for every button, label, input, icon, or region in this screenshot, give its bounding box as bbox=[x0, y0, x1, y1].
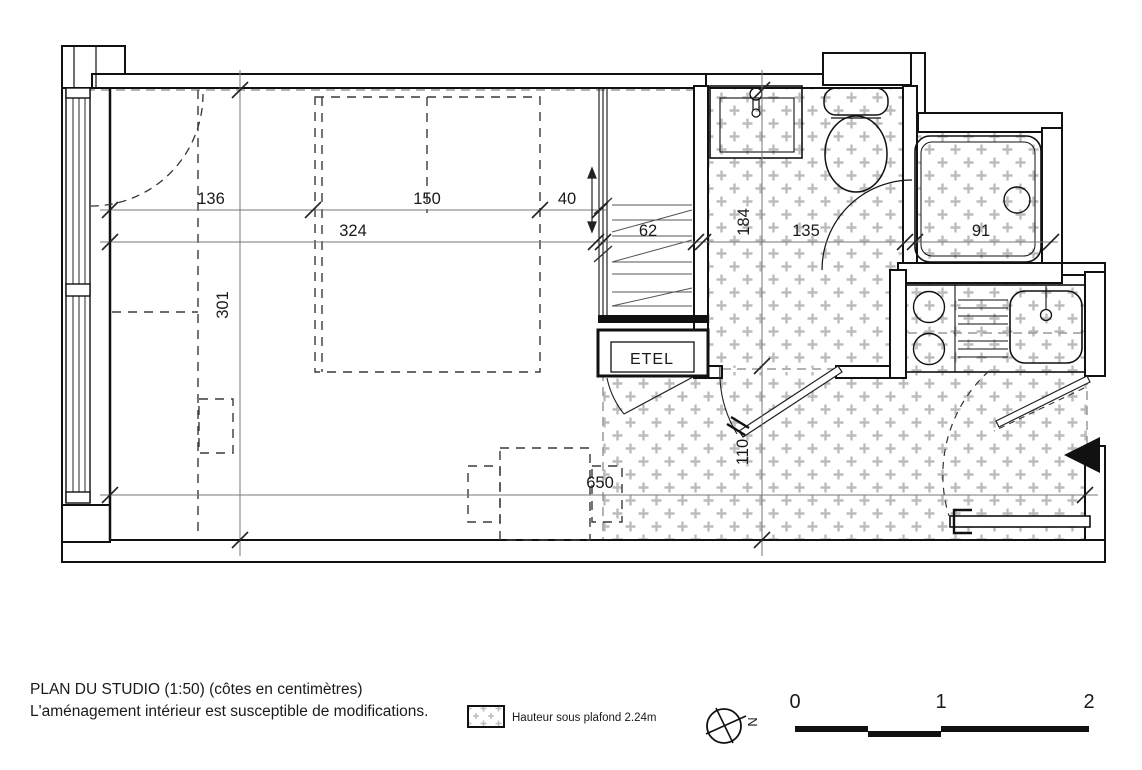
dim-150: 150 bbox=[413, 190, 441, 208]
arrow-40 bbox=[588, 168, 596, 232]
floor-plan-drawing: ETEL bbox=[0, 0, 1142, 770]
dim-136: 136 bbox=[197, 190, 225, 208]
table bbox=[500, 448, 590, 540]
window-swing-arc bbox=[91, 94, 203, 206]
wall-bottomleft-block bbox=[62, 505, 110, 542]
footer: PLAN DU STUDIO (1:50) (côtes en centimèt… bbox=[30, 681, 1095, 743]
radiator-body bbox=[950, 516, 1090, 527]
legend-swatch bbox=[468, 706, 504, 727]
north-compass: N bbox=[706, 708, 760, 743]
window-sill-bottom bbox=[66, 492, 90, 503]
north-label: N bbox=[745, 717, 760, 726]
nightstand bbox=[199, 399, 233, 453]
wall-shower-top bbox=[918, 113, 1062, 132]
dim-40: 40 bbox=[558, 190, 576, 208]
closet: ETEL bbox=[594, 88, 708, 414]
scale-seg-2 bbox=[868, 731, 941, 737]
hatch-kitchen bbox=[905, 283, 1085, 372]
dim-301: 301 bbox=[214, 291, 232, 319]
wall-top-main bbox=[92, 74, 706, 88]
dim-184: 184 bbox=[735, 208, 753, 236]
scale-0: 0 bbox=[789, 691, 800, 713]
plan-subtitle: L'aménagement intérieur est susceptible … bbox=[30, 703, 428, 720]
closet-shelves bbox=[612, 205, 692, 306]
dim-91: 91 bbox=[972, 222, 990, 240]
wall-shower-right bbox=[1042, 128, 1062, 272]
legend-label: Hauteur sous plafond 2.24m bbox=[512, 712, 656, 724]
wall-kitchen-top bbox=[898, 263, 1062, 283]
hatched-zones bbox=[603, 86, 1087, 541]
compass-line-2 bbox=[716, 708, 733, 743]
wall-block-toilet bbox=[823, 53, 915, 85]
scale-bar: 0 1 2 bbox=[789, 691, 1094, 737]
wall-right-upper bbox=[1085, 272, 1105, 376]
dim-324: 324 bbox=[339, 222, 367, 240]
furniture bbox=[112, 90, 622, 540]
window-sill-mid bbox=[66, 284, 90, 296]
wall-kitchen-left bbox=[890, 270, 906, 378]
window-left bbox=[62, 46, 110, 562]
wall-bottom bbox=[62, 540, 1105, 562]
plan-title: PLAN DU STUDIO (1:50) (côtes en centimèt… bbox=[30, 681, 363, 698]
scale-1: 1 bbox=[935, 691, 946, 713]
hatch-shower bbox=[915, 130, 1045, 265]
dim-110: 110 bbox=[734, 439, 752, 465]
closet-bottom-plate bbox=[598, 315, 708, 323]
scale-seg-1 bbox=[795, 726, 868, 732]
dim-135: 135 bbox=[792, 222, 820, 240]
dim-650: 650 bbox=[586, 474, 614, 492]
etel-label: ETEL bbox=[630, 351, 674, 368]
chair-left bbox=[468, 466, 500, 522]
floor-plan-page: ETEL bbox=[0, 0, 1142, 770]
dim-62: 62 bbox=[639, 222, 657, 240]
scale-2: 2 bbox=[1083, 691, 1094, 713]
window-sill-top bbox=[66, 88, 90, 98]
scale-seg-3 bbox=[941, 726, 1089, 732]
